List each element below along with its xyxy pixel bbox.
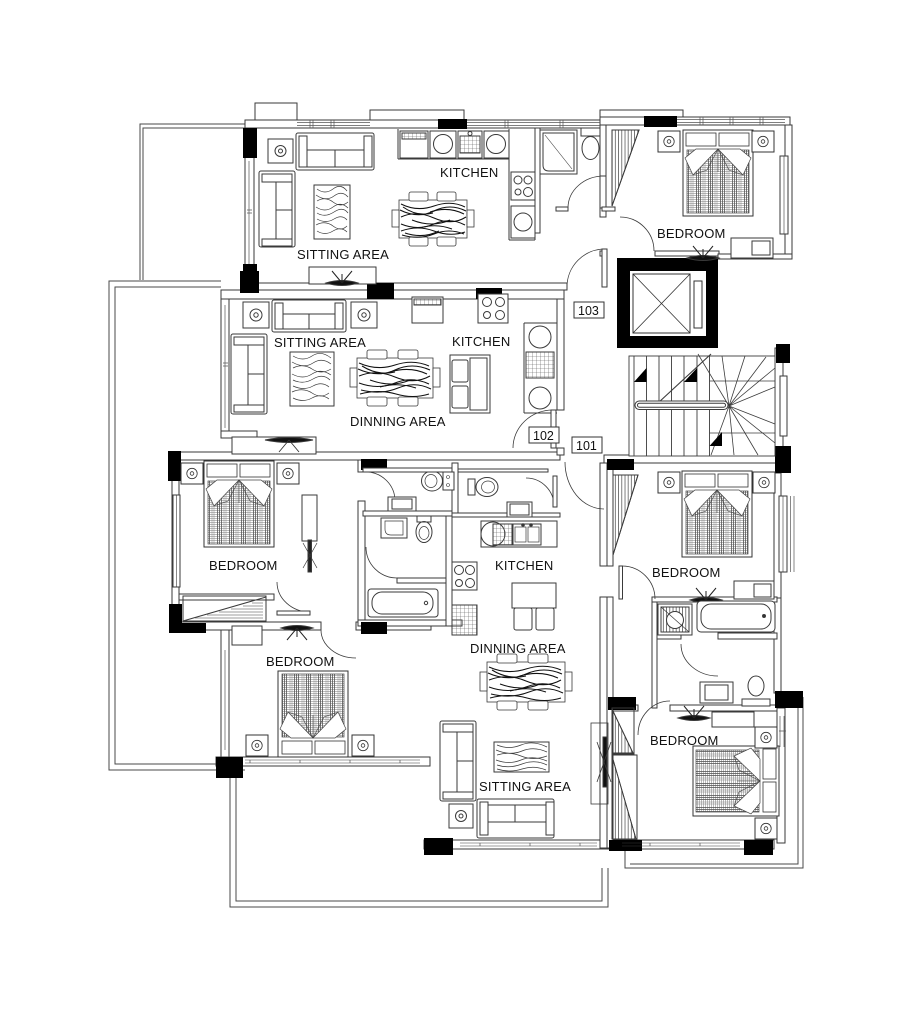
svg-text:102: 102 [533, 429, 554, 443]
svg-text:SITTING AREA: SITTING AREA [479, 779, 571, 794]
svg-text:SITTING AREA: SITTING AREA [274, 335, 366, 350]
svg-text:KITCHEN: KITCHEN [440, 165, 498, 180]
svg-text:SITTING AREA: SITTING AREA [297, 247, 389, 262]
svg-text:BEDROOM: BEDROOM [209, 558, 278, 573]
svg-text:KITCHEN: KITCHEN [452, 334, 510, 349]
svg-text:DINNING AREA: DINNING AREA [470, 641, 566, 656]
svg-text:101: 101 [576, 439, 597, 453]
svg-text:BEDROOM: BEDROOM [652, 565, 721, 580]
svg-text:BEDROOM: BEDROOM [266, 654, 335, 669]
svg-text:103: 103 [578, 304, 599, 318]
svg-text:DINNING AREA: DINNING AREA [350, 414, 446, 429]
svg-text:BEDROOM: BEDROOM [650, 733, 719, 748]
svg-text:BEDROOM: BEDROOM [657, 226, 726, 241]
svg-text:KITCHEN: KITCHEN [495, 558, 553, 573]
